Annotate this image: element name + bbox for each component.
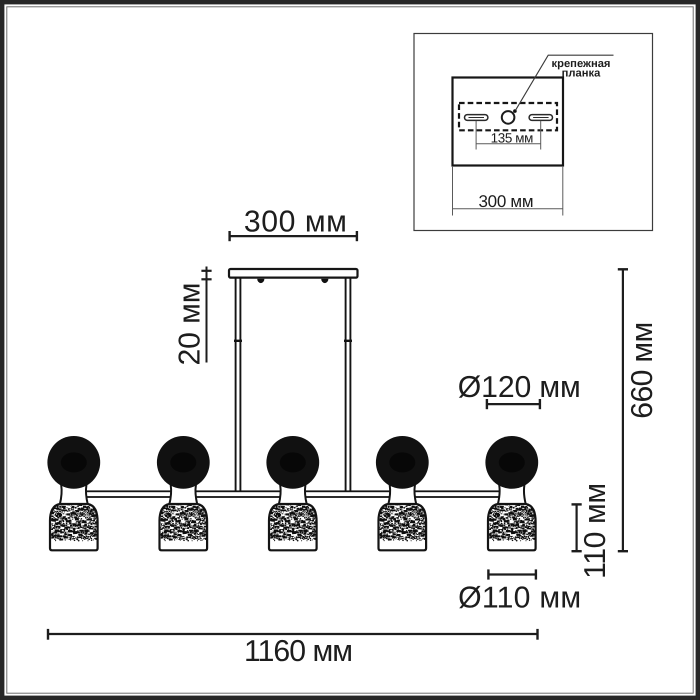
svg-text:Ø120 мм: Ø120 мм bbox=[458, 371, 581, 404]
svg-text:300 мм: 300 мм bbox=[479, 192, 534, 211]
svg-text:планка: планка bbox=[562, 68, 601, 80]
svg-text:110 мм: 110 мм bbox=[579, 483, 612, 579]
svg-text:20 мм: 20 мм bbox=[174, 283, 207, 366]
svg-text:1160 мм: 1160 мм bbox=[244, 635, 353, 668]
svg-text:Ø110 мм: Ø110 мм bbox=[458, 581, 581, 614]
svg-text:135 мм: 135 мм bbox=[491, 131, 534, 146]
svg-text:660 мм: 660 мм bbox=[626, 322, 659, 419]
svg-text:300 мм: 300 мм bbox=[244, 206, 347, 239]
